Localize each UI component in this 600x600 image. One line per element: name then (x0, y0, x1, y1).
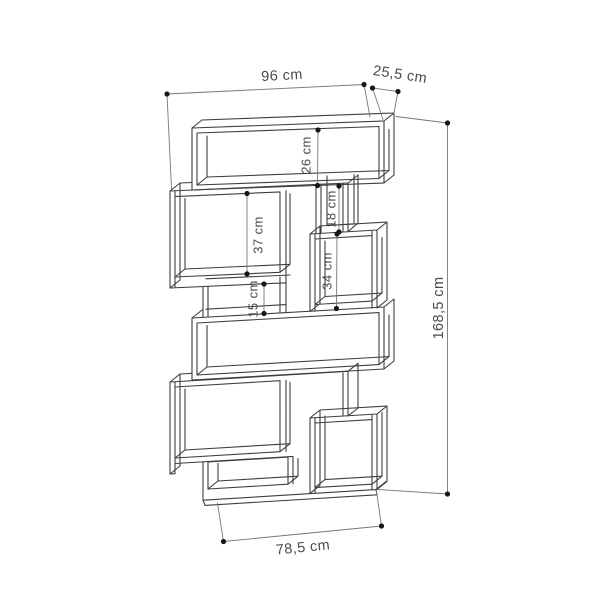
dim-dot (361, 82, 366, 87)
dim-dot (244, 271, 249, 276)
dim-dot (334, 231, 339, 236)
base-box (203, 457, 386, 506)
dim-label-lower-slot: 15 cm (246, 280, 261, 317)
bookcase-dimension-diagram: 96 cm 25,5 cm 168,5 cm 78,5 c (0, 0, 600, 600)
dim-label-overall-width: 96 cm (261, 67, 303, 85)
dimension-lower-slot: 15 cm (246, 280, 267, 317)
dim-label-depth: 25,5 cm (372, 63, 428, 87)
dim-label-upper-left-compartment: 37 cm (251, 216, 266, 253)
dim-dot (370, 85, 375, 90)
dim-label-right-box: 34 cm (320, 252, 335, 289)
dim-dot (445, 491, 450, 496)
lower-left-box (170, 363, 358, 474)
top-box (192, 113, 394, 190)
dim-label-base-width: 78,5 cm (275, 537, 331, 558)
dim-dot (164, 91, 169, 96)
dim-line-right-box (337, 234, 338, 309)
dim-label-overall-height: 168,5 cm (431, 277, 447, 340)
dimension-overall-height: 168,5 cm (378, 117, 450, 497)
dim-dot (315, 183, 320, 188)
dimension-depth: 25,5 cm (370, 63, 428, 119)
dim-dot (244, 191, 249, 196)
dimension-base-width: 78,5 cm (218, 492, 385, 559)
dim-dot (261, 281, 266, 286)
dim-line-top-compartment (318, 130, 319, 186)
dim-dot (395, 89, 400, 94)
dim-dot (221, 539, 226, 544)
dim-label-top-compartment: 26 cm (299, 136, 314, 173)
dimension-top-compartment: 26 cm (299, 127, 321, 188)
dimension-drawing-page: 96 cm 25,5 cm 168,5 cm 78,5 c (0, 0, 600, 600)
dim-dot (336, 183, 341, 188)
dim-dot (379, 523, 384, 528)
dim-dot (261, 311, 266, 316)
right-cubby-lower (310, 406, 387, 493)
dim-dot (334, 306, 339, 311)
dim-dot (445, 120, 450, 125)
dim-label-right-cubby: 18 cm (324, 190, 339, 227)
bookcase-line-drawing (170, 113, 394, 505)
middle-box (192, 299, 394, 380)
dimension-upper-left-compartment: 37 cm (244, 191, 265, 277)
dim-dot (315, 127, 320, 132)
dimension-right-cubby: 18 cm (324, 183, 342, 234)
dim-line-base-width (218, 492, 382, 542)
